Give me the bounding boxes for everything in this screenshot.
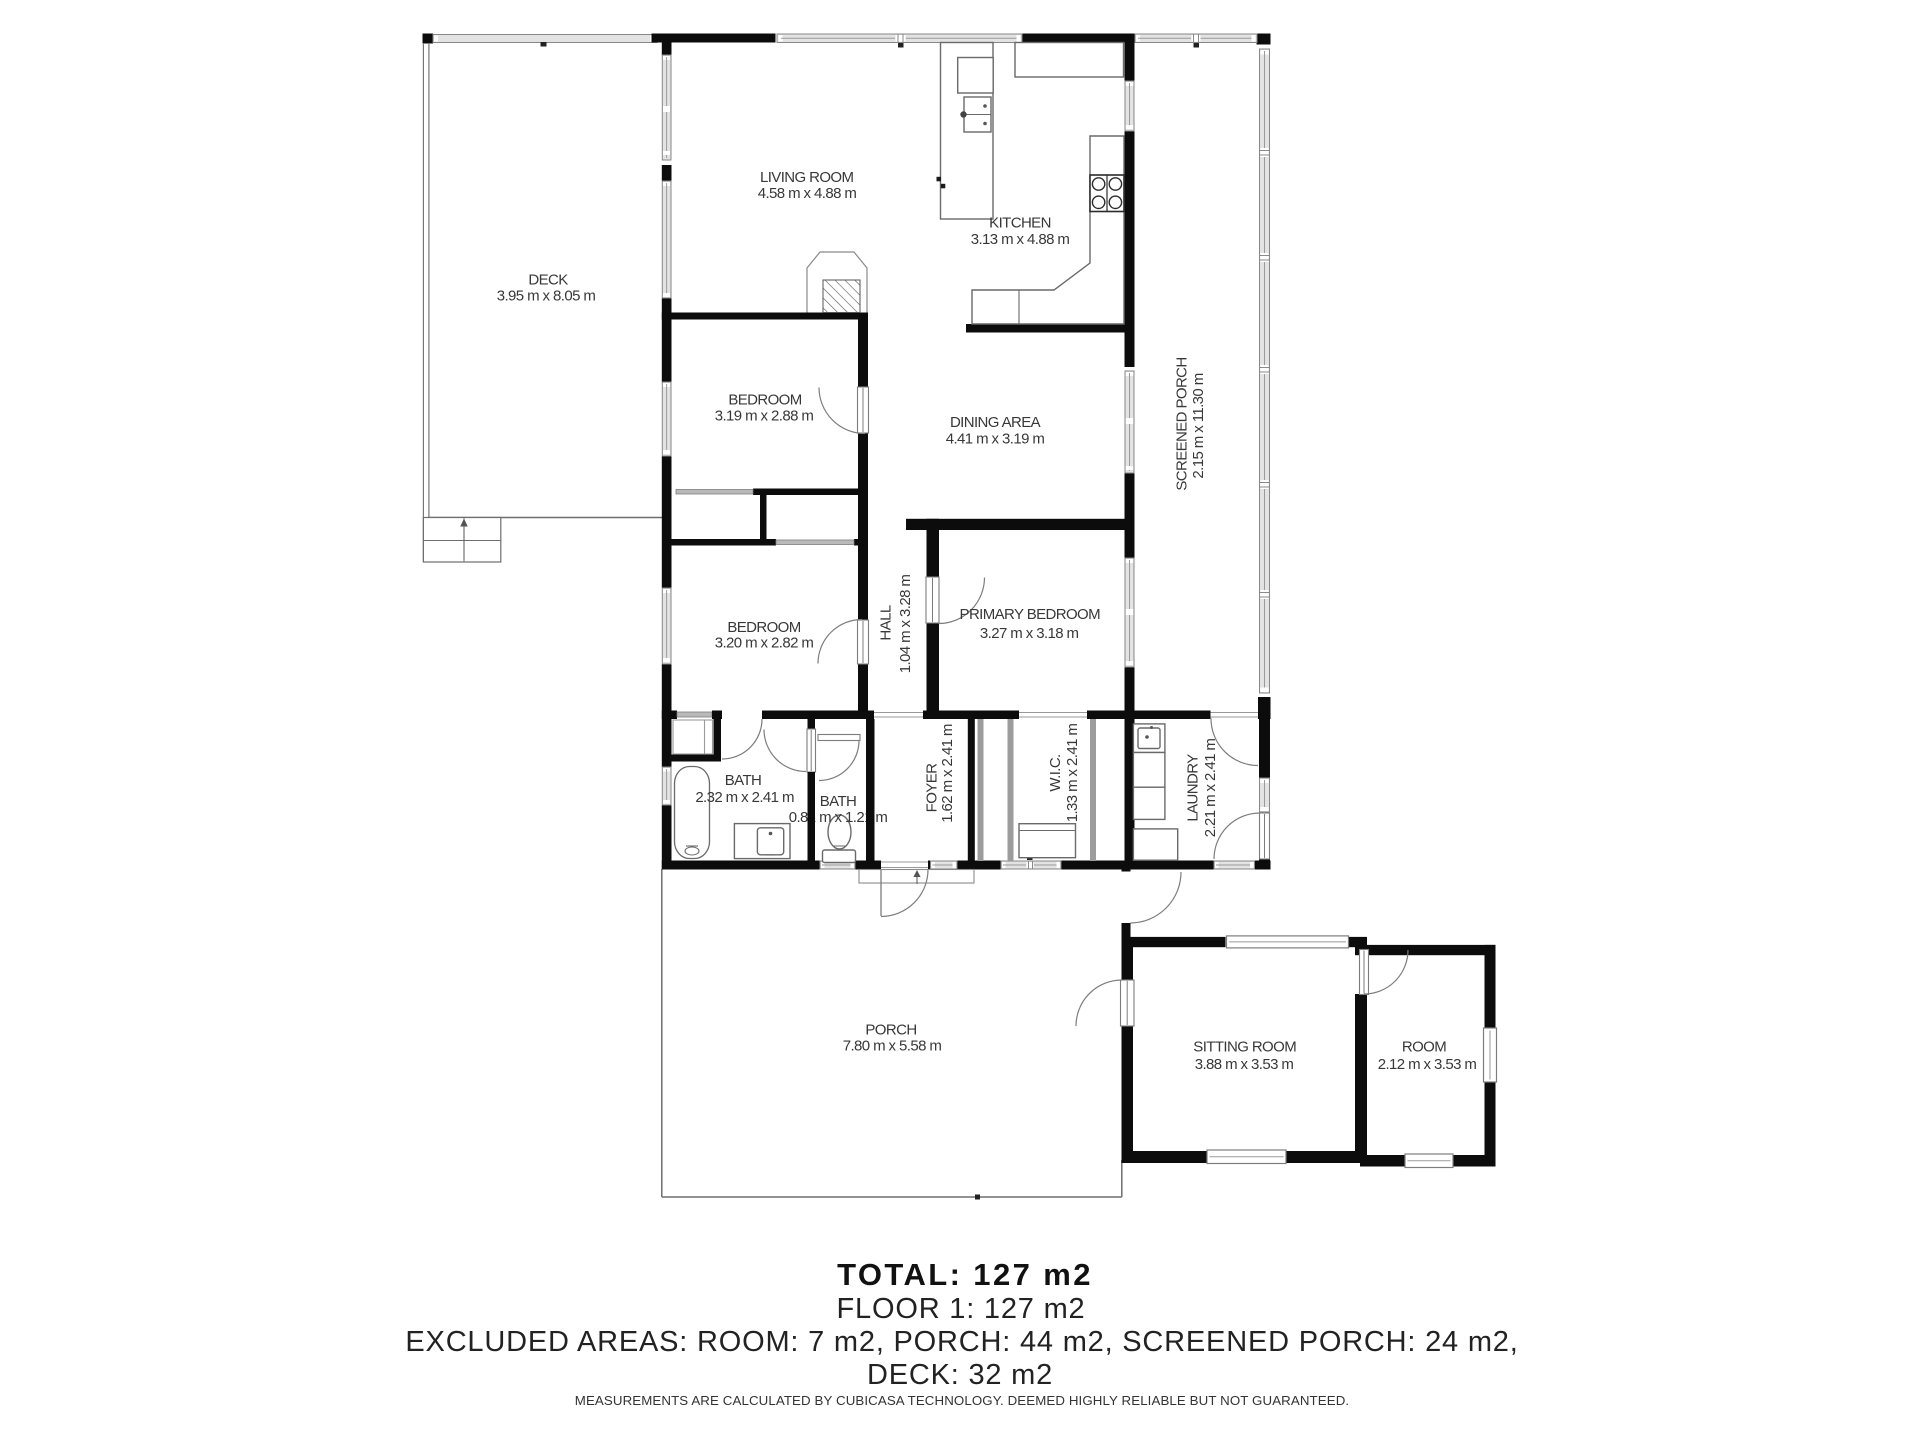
svg-text:1.62 m x 2.41 m: 1.62 m x 2.41 m [939,724,956,823]
svg-text:HALL: HALL [878,605,895,640]
svg-text:3.20 m x 2.82 m: 3.20 m x 2.82 m [715,635,814,652]
svg-text:BATH: BATH [725,772,762,789]
svg-text:PRIMARY BEDROOM: PRIMARY BEDROOM [960,606,1101,623]
svg-text:2.32 m x 2.41 m: 2.32 m x 2.41 m [695,789,794,806]
svg-text:FOYER: FOYER [924,763,941,812]
svg-text:2.21 m x 2.41 m: 2.21 m x 2.41 m [1202,739,1219,838]
svg-text:LAUNDRY: LAUNDRY [1185,754,1202,822]
svg-text:TOTAL: 127 m2: TOTAL: 127 m2 [837,1257,1093,1292]
svg-text:BEDROOM: BEDROOM [728,392,801,409]
svg-text:1.04 m x 3.28 m: 1.04 m x 3.28 m [897,575,914,674]
svg-text:BATH: BATH [820,793,857,810]
svg-text:3.27 m x 3.18 m: 3.27 m x 3.18 m [980,625,1079,642]
svg-text:2.12 m x 3.53 m: 2.12 m x 3.53 m [1378,1056,1477,1073]
svg-text:3.13 m x 4.88 m: 3.13 m x 4.88 m [971,231,1070,248]
svg-text:PORCH: PORCH [865,1022,916,1039]
svg-text:EXCLUDED AREAS: ROOM: 7 m2, PO: EXCLUDED AREAS: ROOM: 7 m2, PORCH: 44 m2… [405,1326,1518,1358]
svg-text:2.15 m x 11.30 m: 2.15 m x 11.30 m [1190,373,1207,478]
svg-text:KITCHEN: KITCHEN [989,215,1051,232]
svg-text:4.58 m x 4.88 m: 4.58 m x 4.88 m [758,185,857,202]
svg-text:7.80 m x 5.58 m: 7.80 m x 5.58 m [843,1038,942,1055]
svg-text:DECK: DECK [528,272,568,289]
svg-text:3.19 m x 2.88 m: 3.19 m x 2.88 m [715,408,814,425]
svg-text:3.95 m x 8.05 m: 3.95 m x 8.05 m [497,288,596,305]
svg-text:DINING AREA: DINING AREA [950,414,1041,431]
svg-text:FLOOR 1: 127 m2: FLOOR 1: 127 m2 [837,1293,1086,1325]
svg-text:ROOM: ROOM [1402,1038,1446,1055]
svg-text:MEASUREMENTS ARE CALCULATED BY: MEASUREMENTS ARE CALCULATED BY CUBICASA … [575,1393,1349,1408]
svg-text:LIVING ROOM: LIVING ROOM [760,169,854,186]
svg-text:SCREENED PORCH: SCREENED PORCH [1174,357,1191,490]
svg-text:4.41 m x 3.19 m: 4.41 m x 3.19 m [946,431,1045,448]
svg-text:1.33 m x 2.41 m: 1.33 m x 2.41 m [1064,724,1081,823]
svg-text:BEDROOM: BEDROOM [727,619,800,636]
svg-text:DECK: 32 m2: DECK: 32 m2 [867,1359,1053,1391]
svg-text:3.88 m x 3.53 m: 3.88 m x 3.53 m [1195,1056,1294,1073]
svg-text:SITTING ROOM: SITTING ROOM [1193,1038,1296,1055]
svg-text:W.I.C.: W.I.C. [1047,754,1064,791]
